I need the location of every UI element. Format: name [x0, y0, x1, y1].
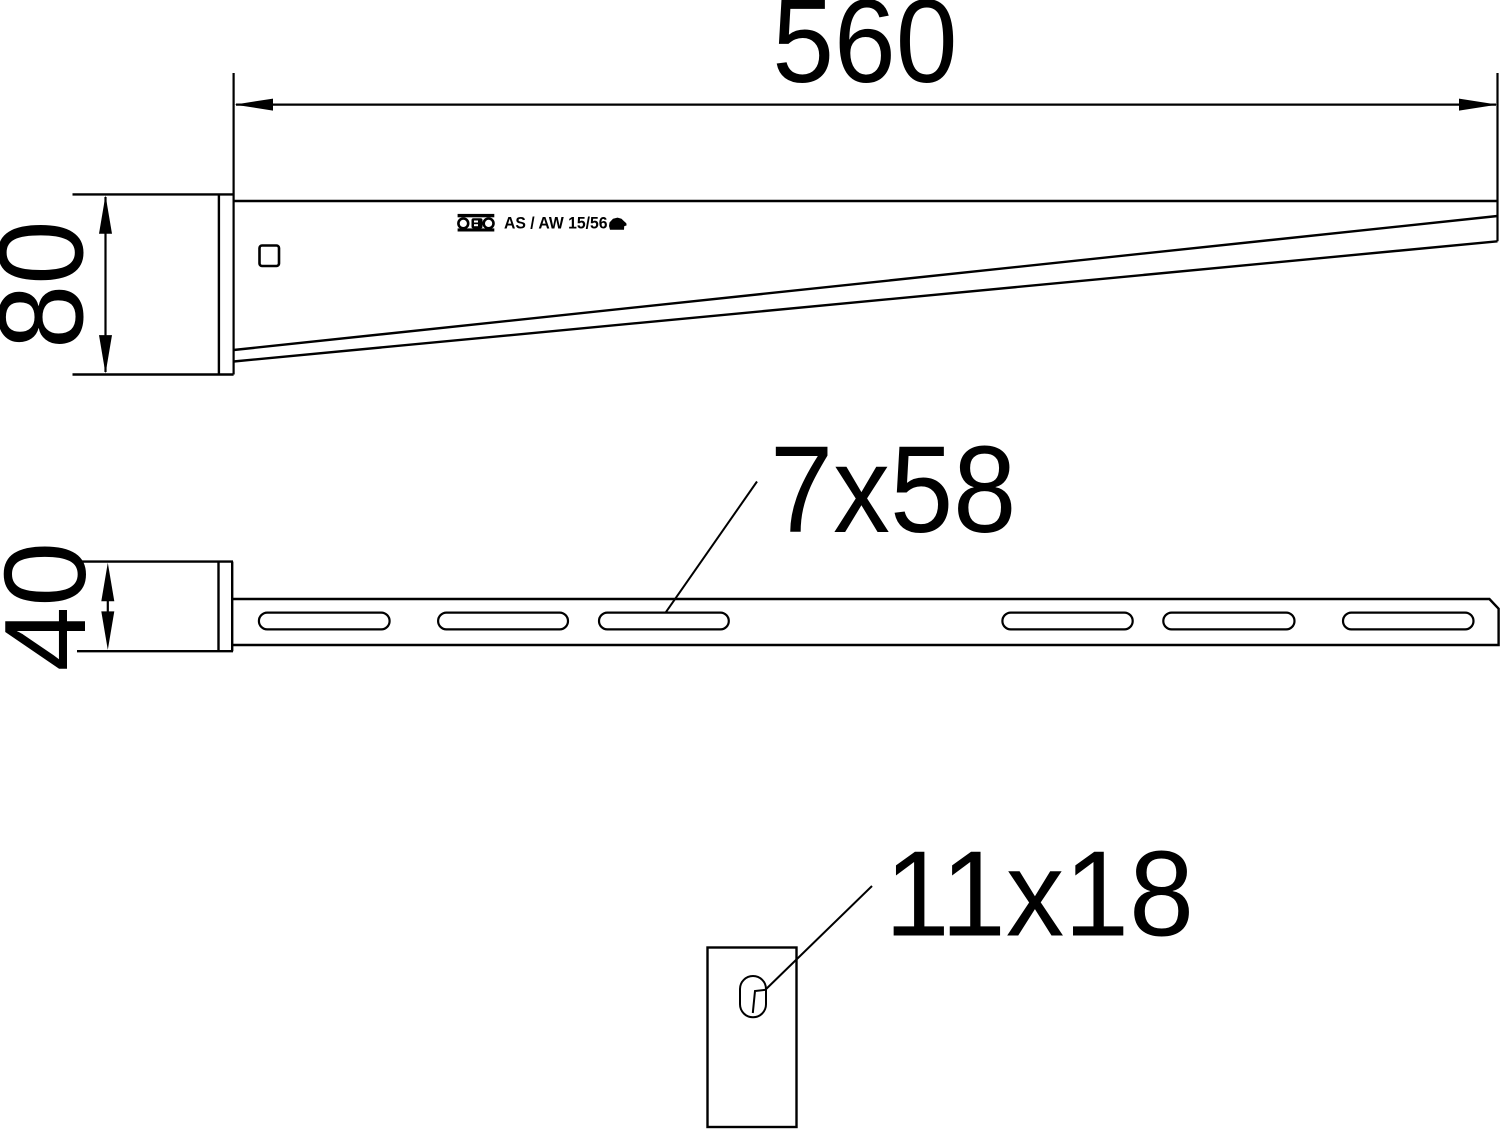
svg-text:80: 80	[0, 221, 109, 349]
svg-text:AS / AW 15/56: AS / AW 15/56	[504, 215, 608, 233]
svg-text:560: 560	[772, 0, 957, 108]
svg-text:40: 40	[0, 542, 110, 671]
svg-text:7x58: 7x58	[770, 422, 1016, 559]
svg-text:11x18: 11x18	[885, 826, 1194, 962]
